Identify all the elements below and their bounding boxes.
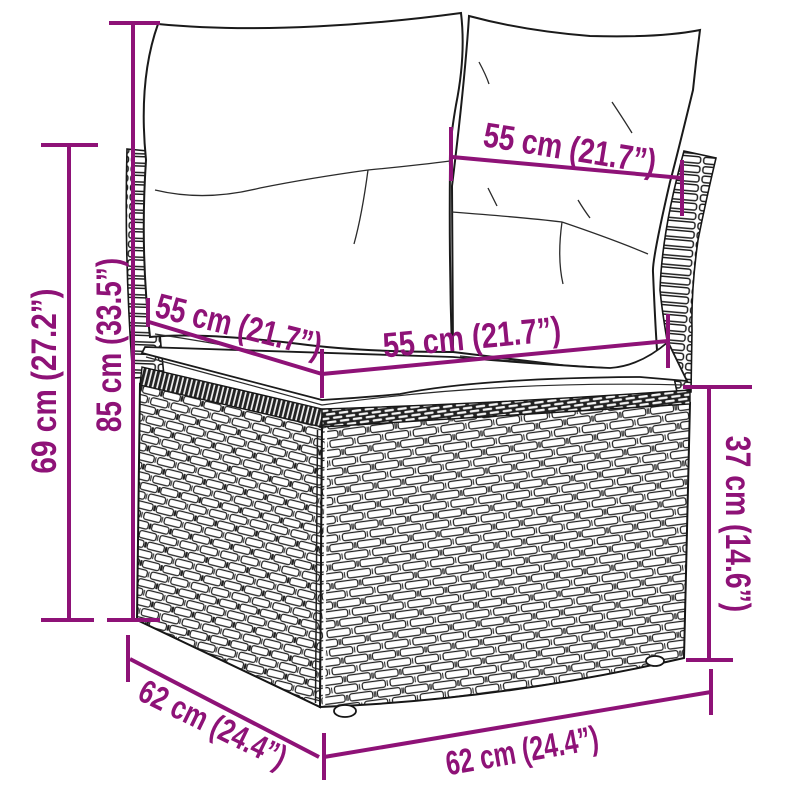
svg-text:85 cm (33.5”): 85 cm (33.5”) <box>89 258 129 432</box>
svg-text:69 cm (27.2”): 69 cm (27.2”) <box>25 288 64 473</box>
svg-text:37 cm (14.6”): 37 cm (14.6”) <box>718 436 758 612</box>
